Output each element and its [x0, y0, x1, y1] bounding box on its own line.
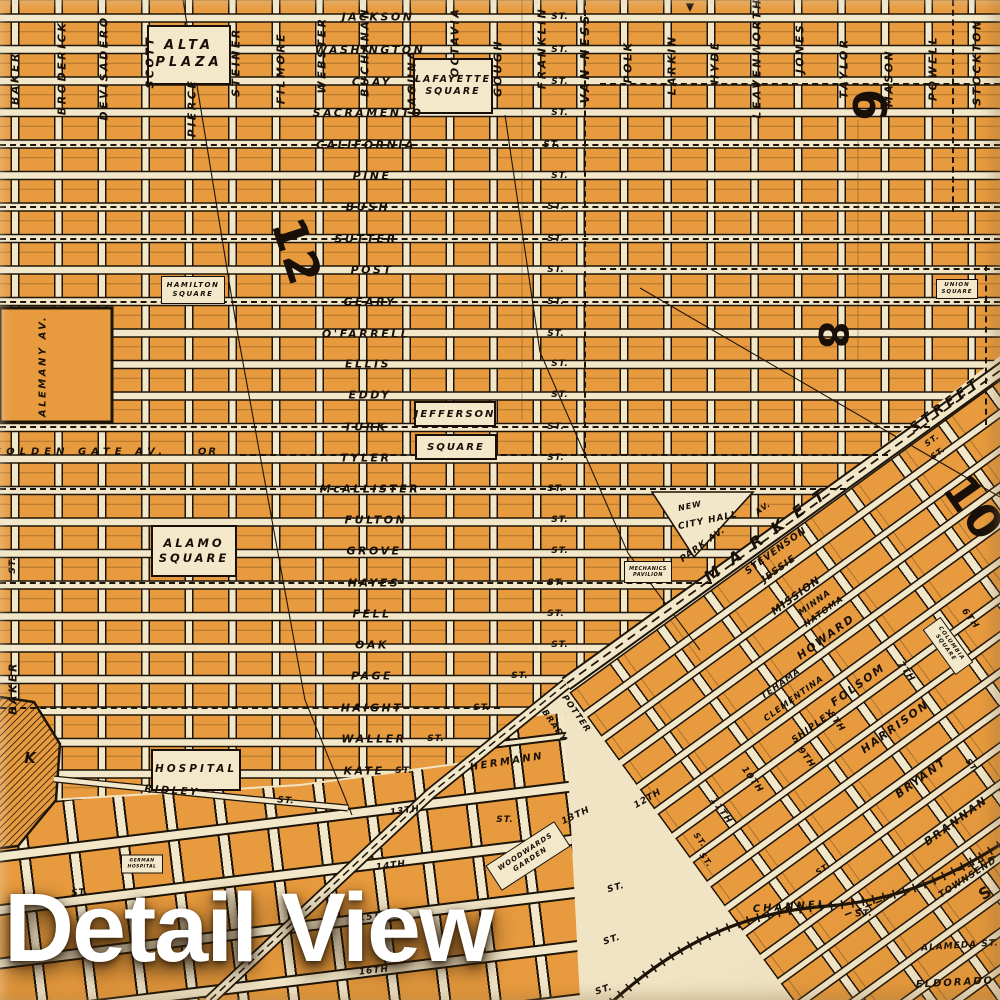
district-numeral: 10 — [932, 464, 1000, 552]
map-label: FELL — [352, 608, 391, 621]
map-label: ALAMEDA ST. — [921, 938, 999, 953]
map-label: ST. — [551, 515, 569, 525]
map-label: ST. — [929, 445, 947, 462]
map-label: DEVISADERO — [98, 15, 111, 120]
map-label: TYLER — [341, 452, 392, 465]
map-label: ST. — [964, 757, 981, 775]
map-label: ELLIS — [345, 358, 391, 371]
map-label: ST. — [547, 578, 565, 588]
map-label: CHANNEL — [753, 899, 828, 915]
map-label: LARKIN — [666, 35, 679, 96]
map-label: PAGE — [351, 670, 393, 683]
map-label: ST. — [606, 881, 626, 895]
map-label: ST. — [551, 108, 569, 118]
map-label: ST. — [547, 609, 565, 619]
map-label: EDDY — [349, 389, 392, 402]
map-label: BRANNAN — [922, 794, 991, 849]
map-label: ST. — [551, 546, 569, 556]
map-label: TURK — [344, 421, 387, 434]
map-label: WALLER — [341, 733, 406, 746]
map-label: OAK — [355, 639, 389, 652]
map-label: ST. — [8, 556, 18, 574]
map-label: WEBSTER — [316, 17, 329, 94]
map-label: ST. — [395, 766, 413, 776]
map-label: GOUGH — [492, 39, 505, 97]
detail-view-title: Detail View — [4, 872, 492, 984]
map-label: ST. — [547, 329, 565, 339]
district-numeral: S — [975, 882, 995, 904]
map-label: ST. — [551, 390, 569, 400]
map-label: McALLISTER — [320, 483, 421, 496]
map-label: 12TH — [632, 787, 663, 811]
map-label: LEAVENWORTH — [751, 0, 764, 119]
map-label: 13TH — [560, 805, 592, 827]
map-label: NEW — [677, 499, 702, 513]
map-label: ST. — [551, 12, 569, 22]
map-label: GROVE — [347, 545, 402, 558]
map-label: ST. — [692, 831, 709, 849]
map-label: CALIFORNIA — [316, 139, 416, 152]
map-label: 10TH — [739, 765, 765, 795]
map-label: ST. — [855, 908, 873, 919]
map-label: JONES — [794, 23, 807, 74]
map-label: HYDE — [709, 40, 722, 84]
map-label: SUTTER — [334, 233, 397, 246]
district-numeral: 6 — [842, 89, 896, 124]
map-label: BRADY — [539, 708, 569, 744]
map-label: AV. — [754, 499, 773, 516]
map-label: ST. — [473, 703, 491, 713]
map-label: ST. — [496, 815, 514, 825]
map-label: BUSH — [346, 201, 390, 214]
map-label: 6TH — [959, 607, 981, 631]
map-label: 7TH — [895, 660, 917, 684]
map-label: BAKER — [7, 661, 20, 715]
map-label: OCTAVIA — [449, 7, 462, 77]
map-label: SCOTT — [144, 35, 157, 88]
map-label: ST. — [602, 933, 622, 948]
map-label: BRODERICK — [56, 21, 69, 116]
map-label: 9TH — [795, 746, 817, 770]
map-label: OR — [198, 447, 218, 458]
map-label: FULTON — [345, 514, 408, 527]
map-label: KATE — [343, 765, 384, 778]
map-label: ST. — [551, 77, 569, 87]
map-label: ST. — [814, 861, 832, 877]
map-label: HERMANN — [469, 751, 545, 774]
map-label: ELDORADO — [916, 975, 995, 990]
map-canvas: ALTAPLAZALAFAYETTESQUAREHAMILTONSQUAREJE… — [0, 0, 1000, 1000]
map-label: BRYANT — [893, 755, 949, 801]
map-label: ST. — [547, 202, 565, 212]
map-label: BAKER — [9, 51, 22, 105]
map-label: ST. — [547, 422, 565, 432]
map-label: STOCKTON — [971, 18, 984, 105]
map-label: ST. — [551, 640, 569, 650]
map-label: 13TH — [389, 804, 420, 818]
map-label: ST. — [551, 359, 569, 369]
map-label: JACKSON — [342, 11, 415, 24]
map-label: ST. — [547, 297, 565, 307]
map-label: ST. — [427, 734, 445, 744]
map-label: HARRISON — [858, 698, 931, 756]
map-label: ST. — [594, 983, 614, 998]
map-label: FRANKLIN — [536, 7, 549, 90]
map-label: ST. — [277, 795, 295, 806]
map-label: PINE — [353, 170, 392, 183]
map-label: HAYES — [348, 577, 400, 590]
map-label: POST — [351, 264, 394, 277]
map-label: LAGUNA — [406, 49, 419, 115]
map-label: PIERCE — [186, 79, 199, 138]
map-label: ST. — [511, 671, 529, 681]
map-label: STREET — [907, 374, 984, 436]
map-label: 8TH — [825, 710, 847, 734]
map-label: FILMORE — [275, 32, 288, 104]
district-numeral: ▼ — [686, 1, 694, 14]
map-label: FOLSOM — [828, 661, 888, 709]
map-label: ST. — [547, 453, 565, 463]
map-label: ST. — [547, 265, 565, 275]
map-label: K — [24, 749, 36, 767]
map-label: 14TH — [375, 859, 406, 873]
district-numeral: 12 — [261, 211, 334, 293]
map-label: POLK — [622, 41, 635, 84]
map-label: HAIGHT — [341, 702, 404, 715]
map-label: CITY HALL — [677, 510, 738, 532]
map-label: ST. — [547, 234, 565, 244]
street-labels-layer: JACKSONST.WASHINGTONST.CLAYST.SACRAMENTO… — [0, 0, 1000, 1000]
map-label: ST. — [543, 140, 561, 150]
map-label: ST. — [547, 484, 565, 494]
map-label: GEARY — [344, 296, 397, 309]
map-label: POWELL — [927, 35, 940, 101]
map-label: ST. — [551, 171, 569, 181]
map-label: 11TH — [708, 796, 734, 826]
map-label: STEINER — [230, 27, 243, 97]
map-label: ALEMANY AV. — [38, 315, 49, 417]
map-label: VAN NESS — [578, 12, 592, 103]
map-label: O'FARRELL — [322, 328, 410, 341]
map-label: POTTER — [559, 693, 592, 734]
map-label: GOLDEN GATE AV. — [0, 447, 167, 458]
map-label: RIDLEY — [144, 784, 200, 799]
district-numeral: 8 — [809, 321, 855, 351]
map-label: CLEMENTINA — [762, 674, 826, 724]
map-label: BUCHANAN — [359, 7, 372, 97]
map-label: ST. — [698, 851, 715, 869]
map-label: ST. — [551, 45, 569, 55]
